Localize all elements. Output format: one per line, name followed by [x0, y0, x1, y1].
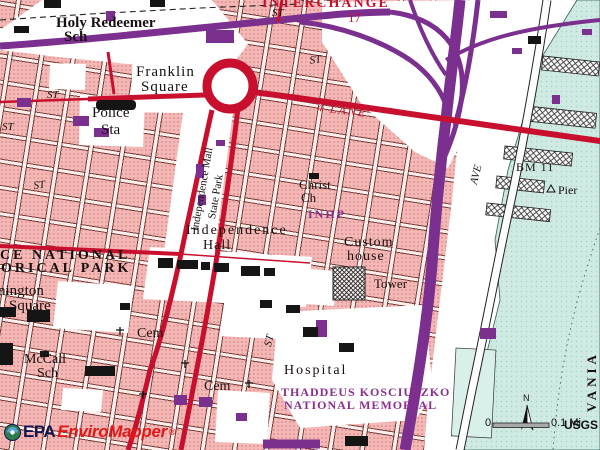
label-custom: Custom	[344, 236, 394, 250]
label-hospital: Hospital	[284, 364, 347, 378]
label-four-lane: 4 LANE	[317, 101, 368, 119]
label-st-4: ST	[309, 54, 322, 67]
label-st-6: ST	[263, 334, 277, 348]
label-washington: nington	[0, 284, 44, 299]
label-benchmark: BM 11	[516, 161, 554, 173]
label-police-sta: Sta	[101, 123, 120, 138]
label-franklin-square: Square	[141, 80, 189, 95]
label-ave: AVE	[469, 164, 484, 186]
label-police: Police	[92, 106, 130, 121]
label-mccall-sch: Sch	[37, 367, 58, 381]
map-viewport[interactable]: Holy Redeemer Sch INTERCHANGE 17 ST ST S…	[0, 0, 600, 450]
enviromapper-brand-text: EnviroMapper	[57, 422, 167, 442]
label-custom-house: house	[347, 250, 385, 264]
label-cemetery-2: Cem	[204, 380, 230, 394]
label-quad-edge: VANIA	[585, 351, 598, 412]
label-memorial-line1: THADDEUS KOSCIUSZKO	[281, 386, 450, 398]
label-cemetery-1: Cem	[137, 327, 163, 341]
label-north: N	[523, 394, 530, 403]
label-st-1: ST	[272, 8, 284, 19]
scale-start-label: 0	[485, 417, 491, 429]
label-memorial-line2: NATIONAL MEMORIAL	[284, 399, 437, 411]
label-washington-square: Square	[9, 299, 51, 314]
label-national-park-line2: ORICAL PARK	[1, 262, 131, 276]
label-st-3: ST	[2, 122, 14, 133]
label-franklin: Franklin	[136, 65, 195, 80]
label-interchange-17: 17	[348, 11, 361, 24]
label-holy-redeemer-sch: Sch	[64, 30, 87, 45]
label-tower: Tower	[374, 277, 407, 290]
label-christ-ch: Ch	[301, 191, 316, 204]
label-pier: Pier	[558, 184, 577, 196]
epa-brand-text: EPA	[23, 422, 55, 442]
scale-agency-label: USGS	[564, 418, 598, 432]
label-mccall: McCall	[24, 353, 66, 367]
label-st-5: ST	[33, 180, 46, 192]
epa-seal-icon	[4, 424, 21, 441]
label-inhp: INHP	[308, 208, 346, 220]
label-independence-hall: Hall	[203, 239, 231, 253]
epa-enviromapper-logo: EPA EnviroMapper ®	[4, 422, 176, 442]
map-label-layer: Holy Redeemer Sch INTERCHANGE 17 ST ST S…	[0, 0, 600, 450]
label-st-2: ST	[47, 90, 59, 101]
label-independence: Independence	[186, 224, 288, 238]
registered-mark: ®	[169, 427, 176, 437]
